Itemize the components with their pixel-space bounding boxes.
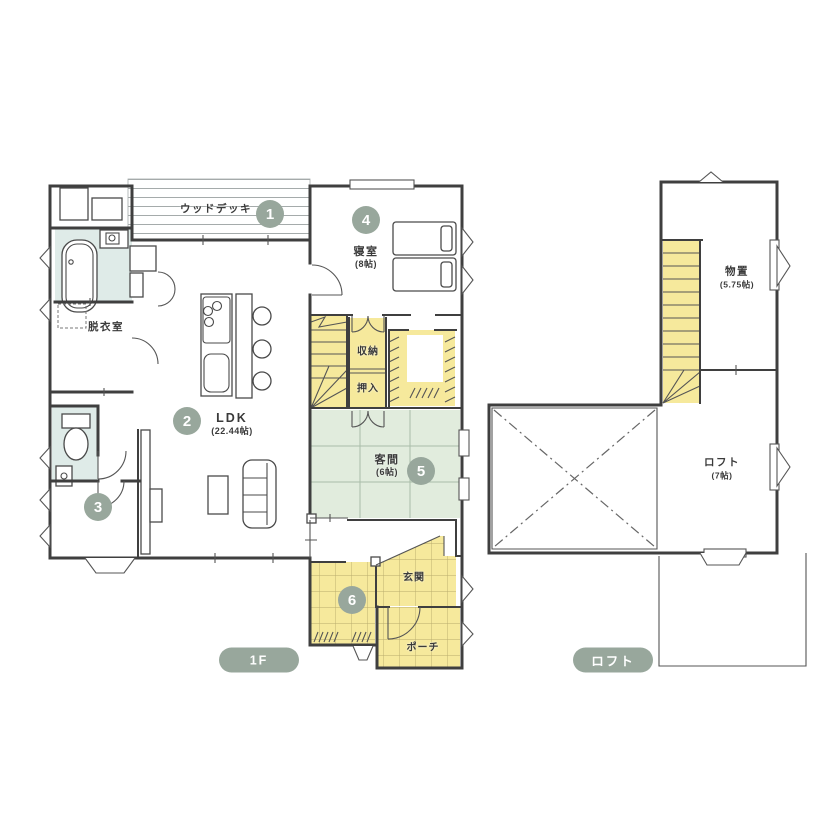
stool [253,372,271,390]
loft-badge: ロフト [573,648,653,673]
roof-vent [699,172,723,182]
lower-roof-outline [659,553,806,666]
dressing-room-label: 脱衣室 [88,321,124,335]
tv-board [141,430,162,554]
laundry-units [60,188,122,220]
kitchen-island [201,294,271,398]
beds [393,222,456,291]
post [371,557,380,566]
entrance-step [353,646,373,660]
ldk-label: LDK (22.44帖) [211,410,253,438]
walkin-closet-inner [407,335,443,382]
guest-room-label: 客間 (6帖) [375,453,400,479]
void-x-mark [494,410,655,547]
pantry-cabinet [130,246,156,297]
marker-5: 5 [407,457,435,485]
loft-room-label: ロフト (7帖) [704,457,740,482]
marker-3: 3 [84,493,112,521]
storage-label: 収納 [357,346,379,359]
marker-1: 1 [256,200,284,228]
living-table [208,476,228,514]
sofa [243,460,276,528]
marker-4: 4 [352,206,380,234]
bath-counter [100,230,128,248]
storeroom-label: 物置 (5.75帖) [720,266,754,291]
floor-plan-canvas [0,0,836,820]
loft-plan [489,172,806,666]
loft-stairs-floor [663,240,700,403]
bedroom-label: 寝室 (8帖) [354,245,379,271]
bay-window [85,558,135,573]
wood-deck-label: ウッドデッキ [180,203,252,217]
futon-closet-label: 押入 [357,383,379,396]
floor-plan-page: ウッドデッキ 1 脱衣室 2 LDK (22.44帖) 3 4 寝室 (8帖) … [0,0,836,820]
porch-label: ポーチ [407,642,440,655]
stool [253,340,271,358]
marker-2: 2 [173,407,201,435]
entrance-label: 玄関 [403,572,425,585]
floor1-badge: 1F [219,648,299,673]
marker-6: 6 [338,586,366,614]
stool [253,307,271,325]
